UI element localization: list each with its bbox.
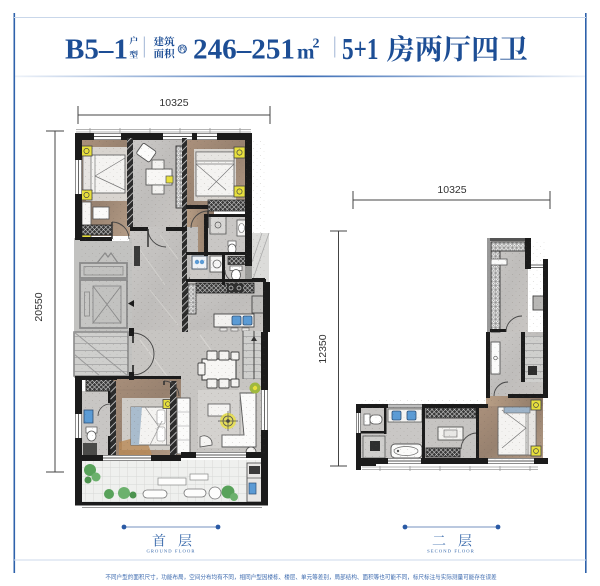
svg-text:B5–1: B5–1 <box>65 34 128 66</box>
svg-text:10325: 10325 <box>159 97 188 109</box>
svg-text:10325: 10325 <box>437 184 466 196</box>
svg-text:5+1: 5+1 <box>342 31 379 66</box>
svg-text:2: 2 <box>313 37 320 52</box>
svg-text:SECOND FLOOR: SECOND FLOOR <box>427 549 475 554</box>
svg-text:246–251: 246–251 <box>193 35 295 66</box>
svg-text:12350: 12350 <box>317 334 329 363</box>
svg-text:GROUND FLOOR: GROUND FLOOR <box>146 549 195 554</box>
svg-text:20550: 20550 <box>33 292 45 321</box>
